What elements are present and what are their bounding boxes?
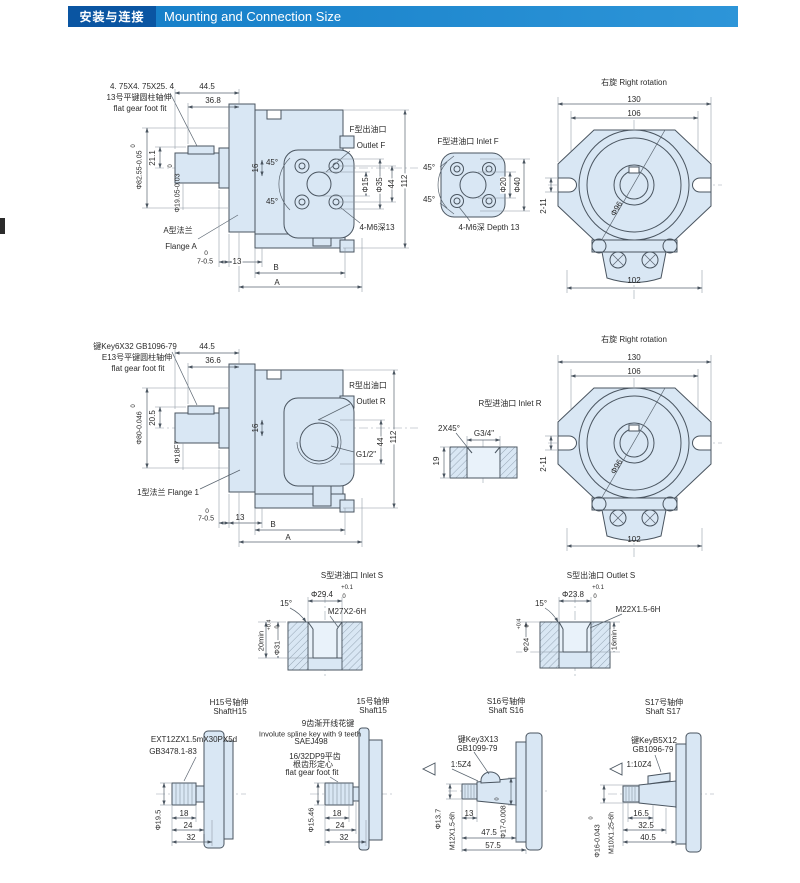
keyway — [629, 167, 639, 173]
drawing-shaft-15 — [310, 728, 392, 850]
s-dim-d24: Φ24 — [522, 637, 530, 653]
flange-1: 1型法兰 Flange 1 — [137, 489, 199, 497]
s-thread-m22: M22X1.5-6H — [616, 606, 661, 614]
sh1-dim-18: 18 — [180, 810, 189, 818]
sh1-std: GB3478.1-83 — [149, 748, 197, 756]
inlet-f-face — [441, 153, 505, 217]
rot2-dim-2-11: 2-11 — [540, 456, 548, 471]
outlet-r-en: Outlet R — [356, 398, 385, 406]
sh2-spline-cn: 9齿渐开线花键 — [302, 720, 354, 728]
sh1-title-en: ShaftH15 — [213, 708, 246, 716]
r-dim-20-5: 20.5 — [149, 410, 157, 426]
drawing-section-inlet-r — [440, 433, 517, 486]
a-dim-d35: Φ35 — [376, 176, 384, 193]
s-dim-20min: 20min — [257, 631, 265, 651]
a-key-note-cn: 13号平键圆柱轴伸 — [107, 94, 172, 102]
r-dim-16: 16 — [252, 424, 260, 433]
sh2-dim-32: 32 — [340, 834, 349, 842]
a-key-size: 4. 75X4. 75X25. 4 — [110, 83, 174, 91]
s-dim-d24-sup: +0.4 — [517, 619, 523, 630]
key-a — [188, 146, 214, 154]
f-dim-d40: Φ40 — [514, 176, 522, 193]
a-m6-note: 4-M6深13 — [359, 224, 394, 232]
taper-symbol — [423, 763, 435, 775]
drawing-section-outlet-s — [516, 594, 622, 676]
sh2-dim-18: 18 — [333, 810, 342, 818]
page: 安装与连接 Mounting and Connection Size — [0, 0, 800, 883]
f-angle-45-bot: 45° — [423, 196, 435, 204]
r-dim-13: 13 — [236, 514, 245, 522]
sh4-title-cn: S17号轴伸 — [645, 699, 683, 707]
s-dim-d31: Φ31 — [273, 640, 281, 656]
sh4-taper: 1:10Z4 — [627, 761, 652, 769]
drawing-rear-view-top — [545, 97, 722, 300]
a-dim-36-8: 36.8 — [205, 97, 221, 105]
sh2-title-en: Shaft15 — [359, 707, 387, 715]
sh4-key-note: 键KeyB5X12 — [631, 737, 677, 745]
inlet-s-title: S型进油口 Inlet S — [321, 572, 383, 580]
r-dim-112: 112 — [390, 430, 398, 445]
a-dim-7-sup: 0 — [204, 251, 208, 258]
f-angle-45-top: 45° — [423, 164, 435, 172]
flange-plate — [359, 728, 369, 850]
r-key-note-cn: E13号平键圆柱轴伸 — [102, 354, 172, 362]
a-dim-a: A — [274, 279, 279, 287]
a-dim-d82-55-sup: 0 — [131, 144, 137, 147]
s-dim-16min: 16min — [610, 629, 618, 651]
sh4-title-en: Shaft S17 — [645, 708, 680, 716]
s-dim-d29-4-sub: 0 — [342, 594, 345, 600]
s-dim-d23-8-sub: 0 — [593, 594, 596, 600]
a-dim-44: 44 — [388, 179, 396, 190]
a-dim-d19-05: Φ19.05-0.03 — [175, 173, 182, 212]
rot1-dim-102: 102 — [627, 277, 640, 285]
s-dim-d31-sup: +0.4 — [267, 620, 273, 631]
so-angle-15: 15° — [535, 600, 547, 608]
sh4-dim-d16-sup: 0 — [589, 816, 595, 819]
keyway — [629, 425, 639, 431]
a-dim-b: B — [273, 264, 278, 272]
r-dim-d80: Φ80-0.046 — [137, 411, 144, 444]
r-dim-44-5: 44.5 — [199, 343, 215, 351]
r-key-note-en: flat gear foot fit — [112, 365, 165, 373]
sh4-std: GB1096-79 — [633, 746, 674, 754]
sh4-dim-16-5: 16.5 — [633, 810, 649, 818]
outlet-f-en: Outlet F — [357, 142, 385, 150]
sh2-dim-24: 24 — [336, 822, 345, 830]
rot2-dim-130: 130 — [627, 354, 640, 362]
sh4-dim-d16: Φ16-0.043 — [595, 824, 602, 857]
f-dim-d20: Φ20 — [500, 176, 508, 193]
f-m6-note: 4-M6深 Depth 13 — [459, 224, 520, 232]
r-g34: G3/4" — [474, 430, 494, 438]
a-dim-d19-05-sup: 0 — [168, 164, 174, 167]
key-6x32 — [188, 406, 214, 414]
sh3-dim-13: 13 — [465, 810, 474, 818]
a-dim-13: 13 — [232, 258, 243, 266]
rot2-dim-102: 102 — [627, 536, 640, 544]
s-dim-d23-8: Φ23.8 — [562, 591, 584, 599]
sh1-title-cn: H15号轴伸 — [210, 699, 249, 707]
outlet-s-title: S型出油口 Outlet S — [567, 572, 635, 580]
outlet-f-cn: F型出油口 — [350, 126, 387, 134]
sh4-thread-m10: M10X1.25-6h — [609, 812, 616, 854]
a-dim-16: 16 — [252, 164, 260, 173]
s-thread-m27: M27X2-6H — [328, 608, 366, 616]
thread-stub — [623, 786, 639, 802]
drawing-canvas — [0, 0, 800, 883]
shaft-a — [175, 153, 219, 183]
woodruff-key — [481, 772, 500, 783]
rear-flange-outline — [558, 130, 711, 240]
sh3-title-cn: S16号轴伸 — [487, 698, 525, 706]
sh3-dim-47-5: 47.5 — [481, 829, 497, 837]
rot2-dim-106: 106 — [627, 368, 640, 376]
rot1-dim-2-11: 2-11 — [540, 198, 548, 213]
sh4-dim-40-5: 40.5 — [640, 834, 656, 842]
sh1-spline-note: EXT12ZX1.5mX30PX5d — [151, 736, 237, 744]
s-dim-d31-sub: 0 — [275, 625, 281, 628]
shaft-e13 — [175, 413, 219, 443]
s-dim-d24-sub: 0 — [525, 624, 531, 627]
r-g12: G1/2" — [356, 451, 376, 459]
rot1-dim-130: 130 — [627, 96, 640, 104]
port-face-f — [284, 150, 354, 238]
r-2x45: 2X45° — [438, 425, 460, 433]
sh1-dim-32: 32 — [187, 834, 196, 842]
a-dim-44-5: 44.5 — [199, 83, 215, 91]
flange-a-en: Flange A — [165, 243, 197, 251]
s-dim-d23-8-sup: +0.1 — [592, 585, 604, 591]
flange-plate — [204, 731, 224, 848]
r-key-note: 键Key6X32 GB1096-79 — [93, 343, 177, 351]
sh3-dim-57-5: 57.5 — [485, 842, 501, 850]
thread-stub — [462, 784, 477, 799]
r-dim-7-sup: 0 — [205, 509, 209, 516]
r-dim-a: A — [285, 534, 290, 542]
rot1-title: 右旋 Right rotation — [601, 79, 667, 87]
sh3-std: GB1099-79 — [457, 745, 498, 753]
r-dim-19: 19 — [433, 457, 441, 466]
port-face-r — [284, 398, 354, 486]
a-dim-21-1: 21.1 — [149, 150, 157, 166]
sh2-title-cn: 15号轴伸 — [357, 698, 390, 706]
a-dim-d15: Φ15 — [362, 176, 370, 193]
a-angle-45-bot: 45° — [266, 198, 278, 206]
sh2-dim-d15-46: Φ15.46 — [307, 808, 315, 833]
drawing-rear-view-bottom — [545, 355, 722, 558]
a-key-note-en: flat gear foot fit — [114, 105, 167, 113]
a-angle-45-top: 45° — [266, 159, 278, 167]
inlet-r-title: R型进油口 Inlet R — [478, 400, 541, 408]
sh3-key-note: 键Key3X13 — [458, 736, 498, 744]
sh2-fit-note: flat gear foot fit — [286, 769, 339, 777]
flange-a-cn: A型法兰 — [163, 227, 192, 235]
sh3-thread-m12: M12X1.5-6h — [450, 812, 457, 850]
s-angle-15: 15° — [280, 600, 292, 608]
r-dim-36-6: 36.6 — [205, 357, 221, 365]
rot1-dim-106: 106 — [627, 110, 640, 118]
s-dim-d29-4-sup: +0.1 — [341, 585, 353, 591]
outlet-r-cn: R型出油口 — [349, 382, 387, 390]
sh3-dim-d13-7: Φ13.7 — [434, 809, 442, 830]
drawing-pump-side-flange-1 — [142, 349, 418, 547]
sh3-dim-d17-sup: 0 — [495, 797, 501, 800]
flange-plate — [686, 733, 701, 852]
r-dim-d80-sup: 0 — [131, 404, 137, 407]
r-dim-7: 7-0.5 — [198, 516, 214, 523]
taper-shaft — [639, 781, 676, 807]
r-dim-44: 44 — [377, 437, 385, 448]
flange-plate — [526, 733, 542, 850]
sh3-taper: 1:5Z4 — [451, 761, 471, 769]
sh3-dim-d17: Φ17-0.008 — [501, 805, 508, 838]
rot2-title: 右旋 Right rotation — [601, 336, 667, 344]
a-dim-7: 7-0.5 — [197, 259, 213, 266]
r-dim-d18f7: Φ18F7 — [173, 440, 181, 463]
s-dim-d29-4: Φ29.4 — [311, 591, 333, 599]
taper-symbol — [610, 763, 622, 775]
a-dim-d82-55: Φ82.55-0.05 — [137, 150, 144, 189]
sh3-title-en: Shaft S16 — [488, 707, 523, 715]
rear-flange-outline — [558, 388, 711, 498]
sh4-dim-32-5: 32.5 — [638, 822, 654, 830]
sh1-dim-24: 24 — [184, 822, 193, 830]
a-dim-112: 112 — [401, 174, 409, 189]
inlet-f-title: F型进油口 Inlet F — [437, 138, 498, 146]
r-dim-b: B — [270, 521, 275, 529]
sh1-dim-d19-5: Φ19.5 — [154, 810, 162, 831]
sh2-sae: SAEJ498 — [294, 738, 327, 746]
